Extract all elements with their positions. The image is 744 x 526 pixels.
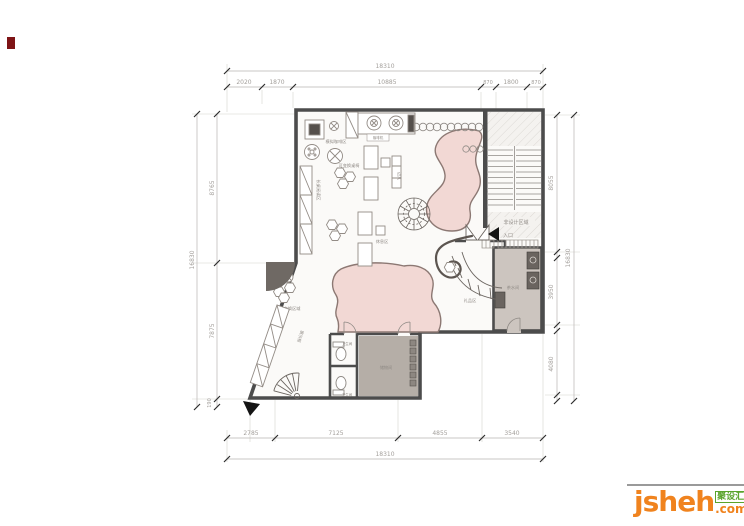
dim-top-total: 18310 [375, 63, 394, 70]
dim-left-seg-0: 8765 [209, 180, 216, 195]
dim-left-seg-1: 7875 [209, 323, 216, 338]
dim-right-seg-1: 3950 [548, 284, 555, 299]
dim-bottom-total: 18310 [375, 451, 394, 458]
coffee-machine-label: 咖啡机 [373, 135, 384, 140]
side-table-label: 边几 [396, 172, 403, 181]
logo-brand[interactable]: jsheh [634, 489, 714, 515]
wc-lower-label: 卫生间 [342, 392, 353, 397]
dim-right-total: 16830 [565, 248, 572, 267]
wc-upper-label: 卫生间 [342, 341, 353, 346]
coffee-corner-label: 模拟咖啡区 [326, 138, 347, 145]
floor-plan-canvas: 18310 2020 1870 10885 870 1800 870 8765 … [0, 0, 744, 526]
dim-top-seg-2: 10885 [377, 79, 396, 86]
hex-table [444, 263, 455, 273]
gift-area-label: 礼品区 [464, 297, 477, 304]
dim-right-seg-0: 8055 [548, 175, 555, 190]
non-design-area-label: 非设计区域 [503, 219, 528, 226]
dim-left-seg-2: 190 [207, 398, 213, 408]
stair-hall: 非设计区域 [483, 110, 541, 238]
entrance-label: 入口 [503, 233, 513, 239]
dim-top-seg-5: 870 [531, 80, 541, 86]
reading-counter-label: 长桌阅读区 [315, 180, 322, 201]
storage-label: 储物间 [380, 364, 393, 371]
pink-room-lower [333, 263, 441, 332]
dim-bottom-seg-1: 7125 [328, 430, 343, 437]
stair-hall-wall [483, 110, 488, 228]
logo-tld[interactable]: .com [715, 503, 744, 516]
dim-top-seg-0: 2020 [236, 79, 251, 86]
site-logo[interactable]: jsheh 聚设汇 .com [634, 489, 742, 516]
dim-bottom-seg-3: 3540 [504, 430, 519, 437]
dim-right-seg-2: 4080 [548, 356, 555, 371]
dim-top-seg-4: 1800 [503, 79, 518, 86]
storage-room: 储物间 [359, 336, 418, 396]
dim-top-seg-3: 870 [483, 80, 493, 86]
exit-arrow-icon [243, 401, 260, 416]
dim-left-total: 16830 [189, 250, 196, 269]
pantry-label: 茶水间 [507, 284, 520, 291]
dim-top-seg-1: 1870 [269, 79, 284, 86]
floor-plan-page: 18310 2020 1870 10885 870 1800 870 8765 … [0, 0, 744, 526]
rest-area-label: 休息区 [376, 238, 389, 245]
red-mark [7, 37, 15, 49]
dim-bottom-seg-0: 2785 [243, 430, 258, 437]
dim-bottom-seg-2: 4855 [432, 430, 447, 437]
